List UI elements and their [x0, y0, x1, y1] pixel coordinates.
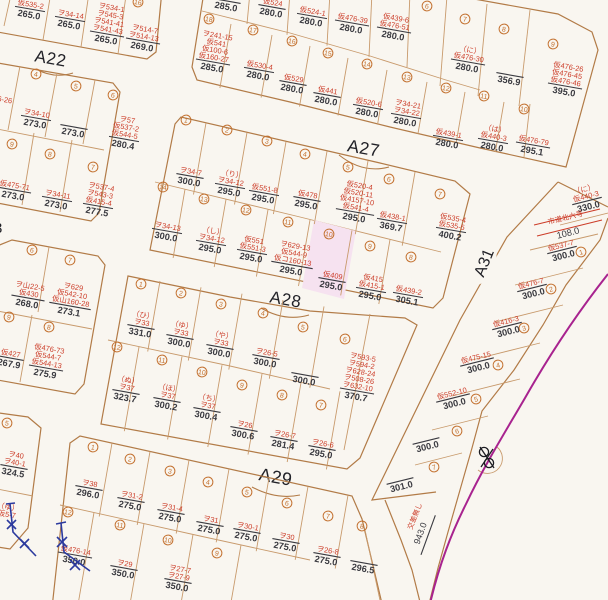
svg-text:16: 16 [287, 38, 296, 46]
svg-text:12: 12 [441, 85, 450, 93]
svg-text:15: 15 [323, 50, 332, 58]
svg-text:11: 11 [284, 219, 292, 227]
svg-text:17: 17 [248, 27, 257, 35]
svg-text:18: 18 [204, 16, 213, 24]
svg-text:11: 11 [480, 93, 488, 101]
svg-text:10: 10 [163, 537, 172, 545]
svg-text:12: 12 [63, 509, 72, 517]
svg-text:12: 12 [241, 207, 250, 215]
svg-text:10: 10 [324, 231, 333, 239]
svg-text:10: 10 [519, 106, 528, 114]
svg-text:11: 11 [116, 522, 124, 530]
svg-text:3: 3 [0, 220, 2, 237]
svg-text:14: 14 [362, 61, 371, 69]
svg-text:12: 12 [112, 344, 121, 352]
svg-text:10: 10 [197, 369, 206, 377]
svg-text:13: 13 [402, 74, 411, 82]
svg-text:13: 13 [199, 196, 208, 204]
svg-text:11: 11 [158, 357, 166, 365]
svg-text:14: 14 [158, 184, 167, 192]
